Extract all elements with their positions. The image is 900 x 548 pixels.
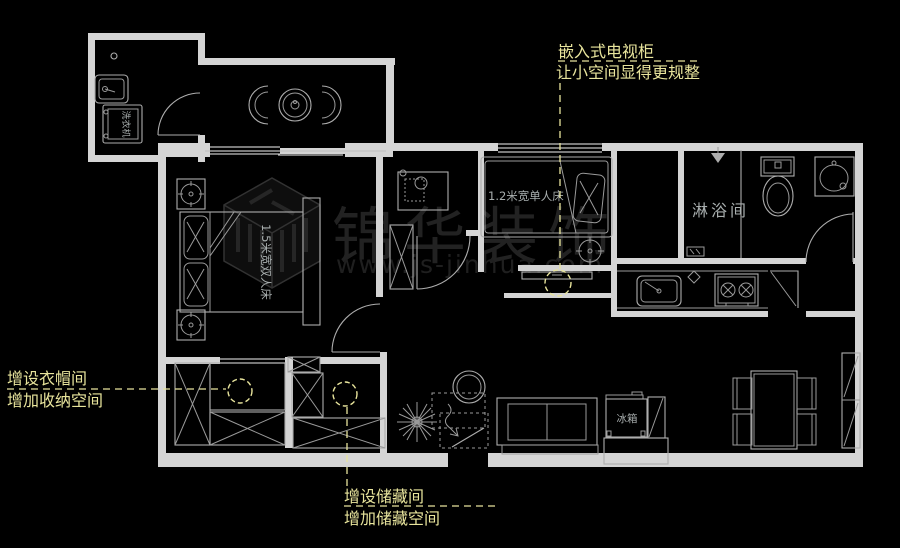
wall-fitting-icon <box>111 53 117 59</box>
nightstand-top-icon <box>177 179 205 209</box>
dining-chairs-icon <box>733 378 816 445</box>
sofa-icon <box>497 398 598 454</box>
kitchen-door-icon <box>770 271 798 308</box>
bathroom-door-icon <box>806 212 853 262</box>
wardrobe-highlight-circle <box>228 379 252 403</box>
annotation-storage-line1: 增设储藏间 <box>344 487 424 506</box>
stove-icon <box>715 274 758 306</box>
annotation-wardrobe-line2: 增加收纳空间 <box>7 391 103 410</box>
wardrobe-left-icon <box>175 363 210 445</box>
round-stool-icon <box>453 371 485 403</box>
balcony-chair-right-icon <box>322 86 341 124</box>
closet-cabinet-icon <box>210 363 285 410</box>
bathroom: 淋浴间 <box>687 147 854 262</box>
fridge-icon: 冰箱 <box>606 392 647 437</box>
storage-highlight-circle <box>333 382 357 406</box>
washing-machine-icon: 洗衣机 <box>103 105 142 143</box>
shower-room-label: 淋浴间 <box>692 201 749 220</box>
balcony-chair-left-icon <box>249 86 268 124</box>
closet-hatch-left-icon <box>210 412 285 445</box>
laundry-room: 洗衣机 <box>95 53 200 143</box>
toilet-icon <box>761 157 794 216</box>
annotation-tv-line2: 让小空间显得更规整 <box>556 63 700 82</box>
floor-drain-icon <box>687 247 704 256</box>
gas-valve-icon <box>688 271 700 283</box>
annotation-wardrobe-line1: 增设衣帽间 <box>7 369 87 388</box>
fridge-label: 冰箱 <box>617 412 638 425</box>
side-cabinet-icon <box>648 397 665 438</box>
floor-plan-canvas: 锦华装饰 www.js-jinhua.com <box>0 0 900 548</box>
washing-machine-label: 洗衣机 <box>120 110 132 137</box>
laundry-sink-icon <box>95 75 128 103</box>
floor-plan-drawing: 锦华装饰 www.js-jinhua.com <box>0 0 900 548</box>
annotation-wardrobe: 增设衣帽间 增加收纳空间 <box>7 369 252 410</box>
master-door-icon <box>332 304 380 352</box>
foyer <box>397 371 488 448</box>
living-dining: 冰箱 <box>497 353 860 464</box>
balcony-table-icon <box>279 89 311 121</box>
storage-hatch-wide-icon <box>293 418 385 448</box>
storage-wardrobe-icon <box>292 373 323 417</box>
washbasin-icon <box>815 157 854 196</box>
kitchen <box>617 271 798 308</box>
laundry-door-icon <box>158 93 200 135</box>
double-bed-label: 1.5米宽双人床 <box>259 224 273 300</box>
annotation-storage-line2: 增加储藏空间 <box>344 509 440 528</box>
balcony <box>249 86 341 124</box>
nightstand-bottom-icon <box>177 310 205 340</box>
kitchen-sink-icon <box>637 276 681 306</box>
dining-table-icon <box>751 371 797 449</box>
annotation-tv-line1: 嵌入式电视柜 <box>558 42 654 61</box>
plant-icon <box>397 402 437 442</box>
entry-arrow-icon <box>445 404 458 436</box>
single-bed-label: 1.2米宽单人床 <box>488 189 564 203</box>
